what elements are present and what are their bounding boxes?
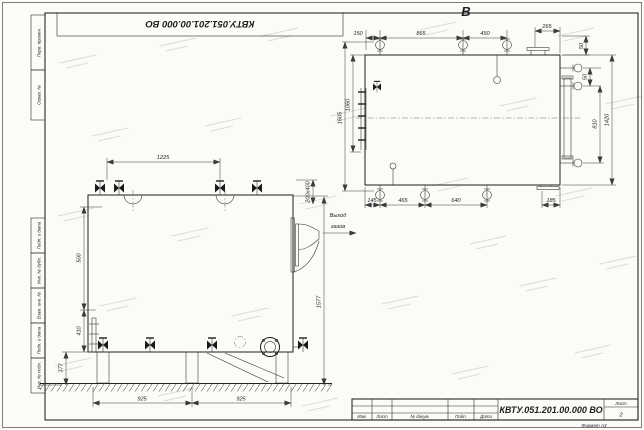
front-view: 1225 500 410 377 200х400 1577 925 xyxy=(40,155,356,407)
dim-1605: 1605 xyxy=(338,111,344,124)
col-izm: Изм. xyxy=(357,414,366,419)
sheet-frame: Перв. примен. Справ. № Подп. и дата Инв.… xyxy=(3,3,642,428)
doc-number: КВТУ.051.201.00.000 ВО xyxy=(499,405,602,415)
dim-500: 500 xyxy=(77,252,83,262)
watermark-texture xyxy=(55,22,642,411)
dim-810: 810 xyxy=(593,118,599,128)
dim-150: 150 xyxy=(353,31,363,37)
col-n-dokum: № докум. xyxy=(410,414,429,419)
dim-265: 265 xyxy=(541,24,552,30)
dim-1225: 1225 xyxy=(157,155,170,161)
dim-145: 145 xyxy=(367,198,377,204)
flue-note-line2: газов xyxy=(331,224,345,230)
flue-note-line1: Выход xyxy=(330,213,347,219)
col-data: Дата xyxy=(479,414,492,419)
dim-925-right: 925 xyxy=(236,397,246,403)
dim-1420: 1420 xyxy=(605,113,611,126)
top-view: В xyxy=(338,4,617,208)
dim-50-top: 50 xyxy=(579,42,585,49)
col-list: Лист xyxy=(375,414,388,419)
sheet-number: 2 xyxy=(618,413,623,419)
flue-outlet xyxy=(291,218,319,272)
rotated-doc-stamp: КВТУ.051.201.00.000 ВО xyxy=(57,13,343,36)
dim-410: 410 xyxy=(77,325,83,335)
dim-377: 377 xyxy=(59,362,65,372)
frame-label-inv-dubl: Инв. № дубл. xyxy=(37,257,42,284)
dim-1060: 1060 xyxy=(346,98,352,111)
dim-flue-size: 200х400 xyxy=(306,180,312,203)
frame-label-sprav-n: Справ. № xyxy=(37,85,42,105)
flue-note: Выход газов xyxy=(323,213,356,233)
dim-465: 465 xyxy=(398,198,408,204)
dim-1577: 1577 xyxy=(317,295,323,308)
dim-865: 865 xyxy=(416,31,426,37)
title-block: Изм. Лист № докум. Подп. Дата КВТУ.051.2… xyxy=(352,399,638,428)
stamp-code-text: КВТУ.051.201.00.000 ВО xyxy=(145,18,255,29)
frame-label-podp-data-2: Подп. и дата xyxy=(37,326,42,354)
sheet-label: Лист xyxy=(614,401,627,406)
dim-50-right: 50 xyxy=(583,73,589,80)
drawing-sheet: Перв. примен. Справ. № Подп. и дата Инв.… xyxy=(0,0,644,430)
top-view-dimensions: 150 865 450 265 50 50 810 1420 xyxy=(338,24,617,208)
dim-450: 450 xyxy=(480,31,490,37)
format-note: Формат А3 xyxy=(581,423,607,428)
dim-185: 185 xyxy=(546,198,556,204)
col-podp: Подп. xyxy=(455,414,467,419)
dim-925-left: 925 xyxy=(137,397,147,403)
frame-label-vzam-inv: Взам. инв. № xyxy=(37,292,42,319)
view-label: В xyxy=(461,4,470,19)
frame-label-podp-data-1: Подп. и дата xyxy=(37,221,42,249)
frame-label-perv-primen: Перв. примен. xyxy=(37,28,42,57)
dim-640: 640 xyxy=(451,198,461,204)
